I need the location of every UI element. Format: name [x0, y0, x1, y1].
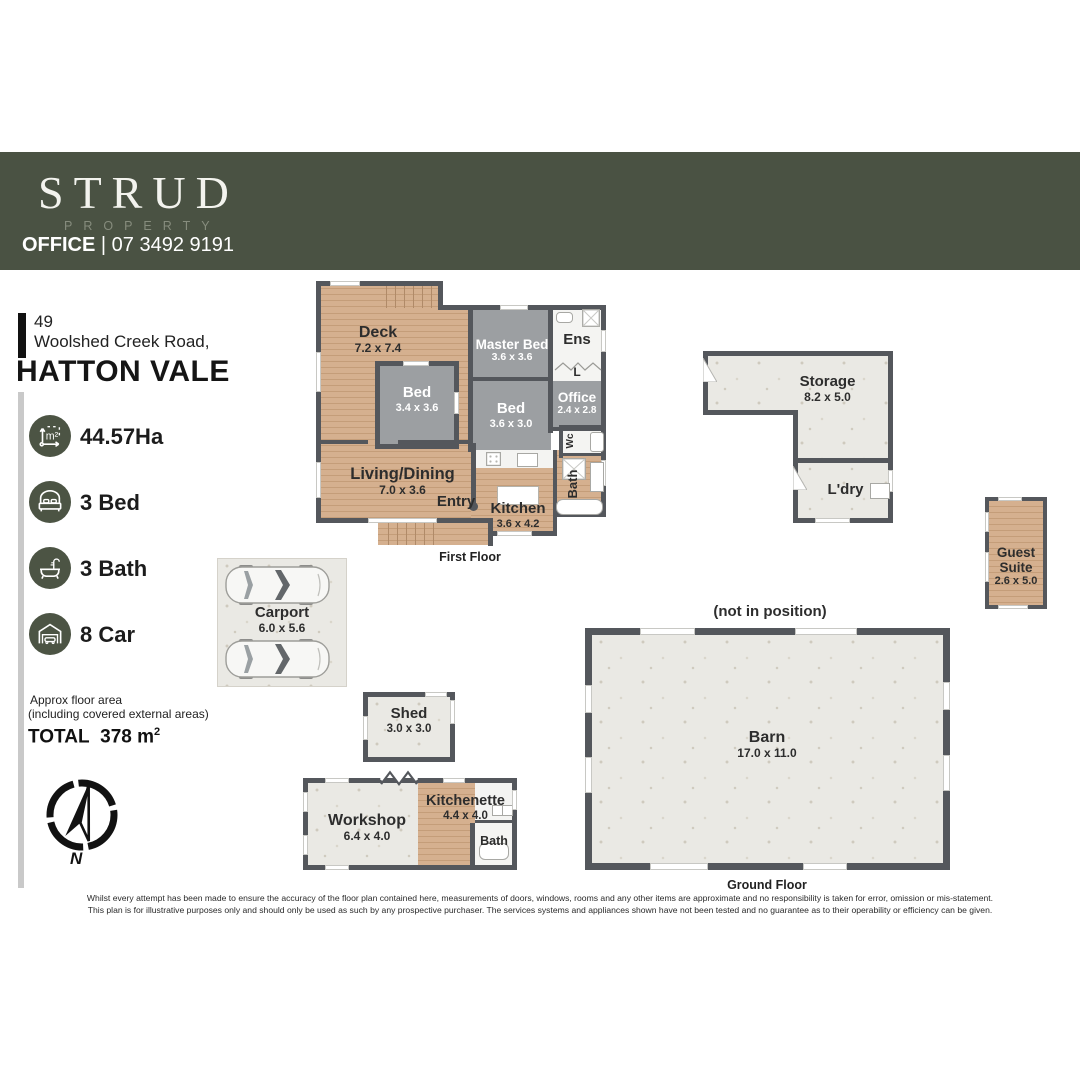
wall — [468, 377, 553, 381]
window — [330, 281, 360, 286]
floor-area-total: TOTAL 378 m2 — [28, 726, 160, 748]
office-number: | 07 3492 9191 — [101, 234, 234, 256]
wall — [798, 458, 893, 463]
street-name: Woolshed Creek Road, — [34, 332, 209, 352]
window — [368, 518, 437, 523]
address-accent-bar — [18, 313, 26, 358]
window — [943, 755, 950, 791]
room-label-office: Office2.4 x 2.8 — [551, 387, 603, 419]
room-label-bed: Bed3.6 x 3.0 — [473, 398, 549, 434]
window — [303, 792, 308, 812]
window — [497, 531, 532, 536]
toilet-icon — [556, 312, 573, 323]
room-label-wc: Wc — [560, 426, 582, 456]
brand-subtitle: PROPERTY — [64, 219, 221, 233]
window — [585, 685, 592, 713]
room-label-storage: Storage8.2 x 5.0 — [765, 372, 890, 406]
street-number: 49 — [34, 312, 53, 332]
vanity-icon — [590, 462, 604, 492]
window — [601, 330, 606, 352]
header-band: STRUD PROPERTY OFFICE | 07 3492 9191 — [0, 152, 1080, 270]
window — [998, 605, 1028, 609]
office-label: OFFICE — [22, 234, 95, 256]
window — [943, 682, 950, 710]
room-label-bed-small: Bed3.4 x 3.6 — [380, 382, 454, 418]
toilet-icon — [590, 432, 604, 452]
bed-icon — [29, 481, 71, 523]
room-label-carport: Carport6.0 x 5.6 — [230, 604, 334, 636]
window — [640, 628, 695, 635]
stove-icon — [486, 452, 501, 466]
window — [650, 863, 708, 870]
office-phone: OFFICE | 07 3492 9191 — [22, 234, 234, 257]
window — [443, 778, 465, 783]
window — [998, 497, 1022, 501]
room-label-ens: Ens — [553, 330, 601, 350]
stat-baths: 3 Bath — [80, 556, 147, 582]
floor-area-note-2: (including covered external areas) — [28, 707, 209, 721]
stat-beds: 3 Bed — [80, 490, 140, 516]
window — [795, 628, 857, 635]
window — [815, 518, 850, 523]
room-label-guest-suite: Guest Suite2.6 x 5.0 — [987, 538, 1045, 594]
suburb: HATTON VALE — [16, 355, 230, 389]
svg-text:N: N — [70, 849, 83, 868]
door-gap — [454, 392, 459, 414]
room-label-laundry: L'dry — [798, 480, 893, 500]
stat-land-size: 44.57Ha — [80, 424, 163, 450]
door-icon — [703, 358, 717, 382]
room-label-linen: L — [553, 366, 601, 380]
garage-icon — [29, 613, 71, 655]
north-compass-icon: N — [40, 773, 124, 869]
window — [585, 757, 592, 793]
room-label-deck: Deck7.2 x 7.4 — [330, 322, 426, 358]
floorplan-flyer: STRUD PROPERTY OFFICE | 07 3492 9191 49 … — [0, 0, 1080, 1080]
brand-logo: STRUD — [38, 166, 239, 219]
ground-floor-caption: Ground Floor — [712, 878, 822, 892]
bath-icon — [29, 547, 71, 589]
first-floor-caption: First Floor — [420, 550, 520, 564]
window — [450, 700, 455, 724]
shower-icon — [582, 309, 600, 327]
stat-cars: 8 Car — [80, 622, 135, 648]
room-label-kitchen: Kitchen3.6 x 4.2 — [482, 501, 554, 531]
window — [425, 692, 447, 697]
room-label-kitchenette: Kitchenette4.4 x 4.0 — [408, 792, 523, 824]
barn-position-note: (not in position) — [650, 602, 890, 622]
disclaimer-line-1: Whilst every attempt has been made to en… — [40, 893, 1040, 905]
window — [500, 305, 528, 310]
deck-stairs — [378, 284, 440, 310]
room-label-master-bed: Master Bed3.6 x 3.6 — [473, 334, 551, 366]
svg-text:m²: m² — [46, 430, 59, 442]
window — [303, 835, 308, 855]
window — [803, 863, 847, 870]
floor-area-note-1: Approx floor area — [30, 693, 122, 707]
room-label-barn: Barn17.0 x 11.0 — [707, 728, 827, 762]
door-gap — [403, 361, 429, 366]
kitchen-counter — [471, 450, 553, 468]
window — [985, 512, 989, 532]
wall — [398, 440, 473, 444]
window — [316, 352, 321, 392]
wall-break-icon — [380, 770, 418, 786]
room-label-bath2: Bath — [474, 833, 514, 849]
wall — [316, 440, 368, 444]
sidebar-rule — [18, 392, 24, 888]
room-label-workshop: Workshop6.4 x 4.0 — [312, 810, 422, 846]
disclaimer-line-2: This plan is for illustrative purposes o… — [40, 905, 1040, 917]
window — [325, 865, 349, 870]
room-label-bath: Bath — [556, 463, 590, 505]
room-label-entry: Entry — [428, 493, 484, 511]
car-top-view-icon — [223, 562, 333, 608]
window — [316, 462, 321, 498]
porch-stairs — [380, 523, 440, 545]
window — [325, 778, 349, 783]
room-label-shed: Shed3.0 x 3.0 — [368, 705, 450, 737]
car-top-view-icon — [223, 636, 333, 682]
sink-icon — [517, 453, 538, 467]
land-size-icon: m² — [29, 415, 71, 457]
